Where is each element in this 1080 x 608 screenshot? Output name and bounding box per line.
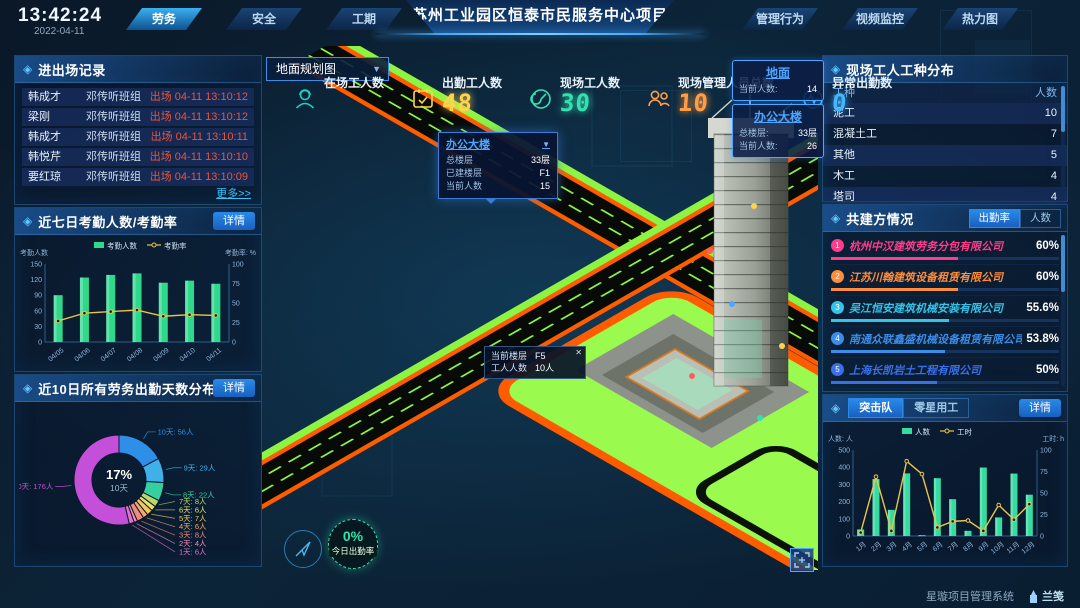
progress-track bbox=[831, 288, 1059, 291]
site-map: 地面规划图 ▼ 在场工人数 出勤工人数 48 bbox=[262, 46, 818, 570]
building-tooltip: 办公大楼 ▼ 总楼层33层 已建楼层F1 当前人数15 bbox=[438, 132, 558, 199]
partner-row: 5 上海长凯岩土工程有限公司 50% bbox=[831, 358, 1059, 389]
nav-tabs-right: 管理行为 视频监控 热力图 bbox=[742, 8, 1018, 30]
stat-attendance-workers: 出勤工人数 48 bbox=[410, 74, 502, 115]
detail-button[interactable]: 详情 bbox=[213, 212, 255, 230]
attendance-label: 今日出勤率 bbox=[329, 545, 377, 557]
progress-fill bbox=[831, 319, 949, 322]
svg-text:1月: 1月 bbox=[854, 540, 868, 553]
chevron-down-icon: ▼ bbox=[542, 140, 550, 149]
detail-button[interactable]: 详情 bbox=[213, 379, 255, 397]
svg-text:90: 90 bbox=[34, 293, 42, 300]
trade-count: 5 bbox=[1027, 145, 1057, 166]
svg-text:25: 25 bbox=[1040, 512, 1048, 519]
rank-badge: 1 bbox=[831, 239, 844, 252]
progress-fill bbox=[831, 350, 945, 353]
company-value: 55.6% bbox=[1026, 302, 1059, 314]
exit-time: 出场 04-11 13:10:10 bbox=[150, 148, 248, 166]
card-row: 当前人数:26 bbox=[739, 140, 817, 153]
stat-value: 48 bbox=[441, 91, 503, 115]
tab-attendance-rate[interactable]: 出勤率 bbox=[969, 209, 1021, 228]
svg-text:60: 60 bbox=[34, 308, 42, 315]
crew-name: 邓传听班组 bbox=[86, 148, 150, 166]
partner-list: 1 杭州中汉建筑劳务分包有限公司 60% 2 江苏川翰建筑设备租赁有限公司 60… bbox=[823, 232, 1067, 392]
card-row: 总楼层:33层 bbox=[739, 127, 817, 140]
trade-row: 木工 4 bbox=[823, 166, 1067, 187]
svg-text:2月: 2月 bbox=[870, 540, 884, 553]
progress-track bbox=[831, 381, 1059, 384]
svg-text:30: 30 bbox=[34, 324, 42, 331]
rank-badge: 5 bbox=[831, 363, 844, 376]
nav-tabs-left: 劳务 安全 工期 bbox=[126, 8, 402, 30]
svg-text:4月: 4月 bbox=[900, 540, 914, 553]
svg-text:50: 50 bbox=[232, 301, 240, 308]
panel-attendance-chart: ◈ 近七日考勤人数/考勤率 详情 03060901201500255075100… bbox=[14, 207, 262, 372]
svg-text:50: 50 bbox=[1040, 491, 1048, 498]
brand-logo: 兰笺 bbox=[1028, 588, 1064, 604]
fullscreen-button[interactable] bbox=[790, 548, 814, 572]
scrollbar bbox=[1061, 86, 1065, 196]
svg-text:0: 0 bbox=[846, 534, 850, 541]
exit-time: 出场 04-11 13:10:09 bbox=[150, 168, 248, 186]
company-name: 杭州中汉建筑劳务分包有限公司 bbox=[849, 238, 1032, 254]
company-value: 60% bbox=[1036, 271, 1059, 283]
panel-squad-chart: ◈ 突击队 零星用工 详情 01002003004005000255075100… bbox=[822, 394, 1068, 567]
tab-headcount[interactable]: 人数 bbox=[1020, 209, 1061, 228]
panel-header: ◈ 进出场记录 bbox=[15, 56, 261, 83]
svg-text:04/05: 04/05 bbox=[47, 347, 65, 363]
page-title: 苏州工业园区恒泰市民服务中心项目 bbox=[406, 0, 674, 33]
partner-row: 3 吴江恒安建筑机械安装有限公司 55.6% bbox=[831, 296, 1059, 327]
diamond-icon: ◈ bbox=[831, 401, 840, 415]
card-title: 办公大楼 bbox=[739, 108, 817, 125]
company-value: 60% bbox=[1036, 240, 1059, 252]
svg-text:10天: 56人: 10天: 56人 bbox=[158, 427, 194, 436]
panel-title: 共建方情况 bbox=[846, 209, 914, 228]
panel-header: ◈ 近10日所有劳务出勤天数分布 详情 bbox=[15, 375, 261, 402]
crew-name: 邓传听班组 bbox=[86, 128, 151, 146]
svg-text:9月: 9月 bbox=[977, 540, 991, 553]
svg-text:17%: 17% bbox=[106, 467, 132, 482]
worker-marker-icon[interactable] bbox=[779, 343, 785, 349]
panel-header: ◈ 突击队 零星用工 详情 bbox=[823, 395, 1067, 422]
trade-count: 4 bbox=[1027, 166, 1057, 187]
svg-text:04/06: 04/06 bbox=[74, 347, 92, 363]
worker-marker-icon[interactable] bbox=[757, 415, 763, 421]
svg-text:考勤人数: 考勤人数 bbox=[20, 248, 48, 257]
svg-text:8月: 8月 bbox=[962, 540, 976, 553]
svg-text:150: 150 bbox=[30, 262, 42, 269]
trade-count: 10 bbox=[1027, 103, 1057, 124]
svg-text:100: 100 bbox=[232, 262, 244, 269]
card-office-building[interactable]: 办公大楼 总楼层:33层 当前人数:26 bbox=[732, 104, 824, 158]
squad-chart: 010020030040050002550751001月2月3月4月5月6月7月… bbox=[827, 424, 1065, 564]
company-name: 吴江恒安建筑机械安装有限公司 bbox=[849, 300, 1022, 316]
top-bar: 13:42:24 2022-04-11 劳务 安全 工期 苏州工业园区恒泰市民服… bbox=[0, 0, 1080, 46]
tooltip-row: 当前人数15 bbox=[446, 180, 550, 193]
progress-track bbox=[831, 257, 1059, 260]
crew-name: 邓传听班组 bbox=[86, 168, 150, 186]
squad-tabs: 突击队 零星用工 bbox=[848, 398, 969, 418]
svg-text:100: 100 bbox=[1040, 448, 1052, 455]
worker-name: 韩成才 bbox=[28, 128, 86, 146]
company-value: 50% bbox=[1036, 364, 1059, 376]
navigation-arrow-icon bbox=[293, 539, 313, 559]
exit-time: 出场 04-11 13:10:12 bbox=[150, 108, 248, 126]
exit-time: 出场 04-11 13:10:11 bbox=[151, 128, 248, 146]
svg-text:200: 200 bbox=[838, 499, 850, 506]
system-name: 星璇项目管理系统 bbox=[926, 588, 1014, 604]
svg-text:25: 25 bbox=[232, 320, 240, 327]
svg-text:1天: 6人: 1天: 6人 bbox=[179, 547, 207, 556]
svg-text:考勤人数: 考勤人数 bbox=[107, 241, 137, 251]
svg-text:120: 120 bbox=[30, 277, 42, 284]
record-row: 韩成才 邓传听班组 出场 04-11 13:10:11 bbox=[22, 128, 254, 146]
tab-labor[interactable]: 劳务 bbox=[126, 8, 202, 30]
card-title: 地面 bbox=[739, 64, 817, 81]
svg-text:300: 300 bbox=[838, 482, 850, 489]
panel-title: 进出场记录 bbox=[38, 60, 106, 79]
tab-assault-team[interactable]: 突击队 bbox=[848, 398, 903, 418]
svg-text:75: 75 bbox=[232, 281, 240, 288]
svg-text:11月: 11月 bbox=[1005, 540, 1021, 555]
svg-text:12月: 12月 bbox=[1020, 540, 1037, 555]
svg-text:75: 75 bbox=[1040, 469, 1048, 476]
panel-header: ◈ 共建方情况 出勤率 人数 bbox=[823, 205, 1067, 232]
diamond-icon: ◈ bbox=[831, 211, 840, 225]
record-row: 韩悦芹 邓传听班组 出场 04-11 13:10:10 bbox=[22, 148, 254, 166]
worker-name: 韩成才 bbox=[28, 88, 86, 106]
svg-text:10月: 10月 bbox=[989, 540, 1006, 555]
svg-text:9天: 29人: 9天: 29人 bbox=[184, 463, 216, 472]
record-row: 韩成才 邓传听班组 出场 04-11 13:10:12 bbox=[22, 88, 254, 106]
rank-badge: 2 bbox=[831, 270, 844, 283]
card-row: 当前人数:14 bbox=[739, 83, 817, 96]
stat-site-workers: 现场工人数 30 bbox=[528, 74, 620, 115]
svg-text:考勤率: %: 考勤率: % bbox=[225, 248, 256, 257]
card-ground[interactable]: 地面 当前人数:14 bbox=[732, 60, 824, 101]
diamond-icon: ◈ bbox=[23, 214, 32, 228]
attendance-chart: 0306090120150025507510004/0504/0604/0704… bbox=[19, 238, 257, 368]
gauge-icon bbox=[528, 86, 554, 112]
crew-name: 邓传听班组 bbox=[86, 108, 150, 126]
svg-text:04/09: 04/09 bbox=[152, 347, 170, 363]
tab-safety[interactable]: 安全 bbox=[226, 8, 302, 30]
scrollbar bbox=[1061, 235, 1065, 386]
worker-marker-icon[interactable] bbox=[689, 373, 695, 379]
worker-marker-icon[interactable] bbox=[729, 301, 735, 307]
partner-row: 4 南通众联鑫盛机械设备租赁有限公司 53.8% bbox=[831, 327, 1059, 358]
worker-name: 韩悦芹 bbox=[28, 148, 86, 166]
building-tooltip-selector[interactable]: 办公大楼 ▼ bbox=[446, 136, 550, 152]
people-icon bbox=[646, 86, 672, 112]
trade-name: 其他 bbox=[833, 145, 1027, 166]
rank-badge: 4 bbox=[831, 332, 844, 345]
partner-tabs: 出勤率 人数 bbox=[969, 209, 1062, 228]
company-name: 江苏川翰建筑设备租赁有限公司 bbox=[849, 269, 1032, 285]
svg-text:3月: 3月 bbox=[885, 540, 899, 553]
svg-text:04/10: 04/10 bbox=[179, 347, 197, 363]
svg-text:0: 0 bbox=[38, 340, 42, 347]
svg-text:04/08: 04/08 bbox=[126, 347, 144, 363]
stat-value: 30 bbox=[559, 91, 621, 115]
tab-schedule[interactable]: 工期 bbox=[326, 8, 402, 30]
panel-title: 近10日所有劳务出勤天数分布 bbox=[38, 379, 215, 398]
partner-row: 6 江苏浩治建筑安装工程有限公司 35.4% bbox=[831, 389, 1059, 392]
scrollbar-thumb[interactable] bbox=[1061, 86, 1065, 132]
stat-label: 在场工人数 bbox=[324, 74, 384, 91]
record-row: 梁刚 邓传听班组 出场 04-11 13:10:12 bbox=[22, 108, 254, 126]
panel-title: 近七日考勤人数/考勤率 bbox=[38, 212, 177, 231]
clock-date: 2022-04-11 bbox=[34, 26, 84, 37]
tab-heatmap[interactable]: 热力图 bbox=[942, 8, 1018, 30]
trade-table: 泥工 10 混凝土工 7 其他 5 木工 4 塔司 4 bbox=[823, 103, 1067, 208]
svg-text:04/07: 04/07 bbox=[100, 347, 118, 363]
stats-row: 在场工人数 出勤工人数 48 现场工人数 30 bbox=[292, 74, 918, 115]
svg-text:04/11: 04/11 bbox=[205, 347, 223, 363]
svg-text:5月: 5月 bbox=[916, 540, 930, 553]
tab-casual-labor[interactable]: 零星用工 bbox=[903, 398, 969, 418]
company-value: 53.8% bbox=[1026, 333, 1059, 345]
attendance-percent: 0% bbox=[329, 528, 377, 544]
tab-management-behavior[interactable]: 管理行为 bbox=[742, 8, 818, 30]
diamond-icon: ◈ bbox=[23, 62, 32, 76]
worker-marker-icon[interactable] bbox=[707, 248, 713, 254]
svg-text:500: 500 bbox=[838, 448, 850, 455]
column-count: 人数 bbox=[1027, 83, 1057, 103]
building-name: 办公大楼 bbox=[446, 136, 490, 152]
svg-text:100: 100 bbox=[838, 516, 850, 523]
svg-text:0: 0 bbox=[232, 340, 236, 347]
rank-badge: 3 bbox=[831, 301, 844, 314]
trade-count: 7 bbox=[1027, 124, 1057, 145]
partner-row: 1 杭州中汉建筑劳务分包有限公司 60% bbox=[831, 234, 1059, 265]
tooltip-row: 当前楼层F5 bbox=[491, 350, 579, 362]
trade-row: 混凝土工 7 bbox=[823, 124, 1067, 145]
svg-text:400: 400 bbox=[838, 465, 850, 472]
calendar-check-icon bbox=[410, 86, 436, 112]
distribution-donut-chart: 10天: 56人9天: 29人8天: 22人7天: 8人6天: 6人5天: 7人… bbox=[19, 404, 257, 564]
worker-name: 梁刚 bbox=[28, 108, 86, 126]
footer: 星璇项目管理系统 兰笺 bbox=[926, 588, 1064, 604]
progress-fill bbox=[831, 381, 937, 384]
scrollbar-thumb[interactable] bbox=[1061, 235, 1065, 292]
panel-header: ◈ 近七日考勤人数/考勤率 详情 bbox=[15, 208, 261, 235]
brand-tower-icon bbox=[1028, 590, 1039, 603]
svg-text:10天: 10天 bbox=[110, 483, 128, 493]
svg-text:考勤率: 考勤率 bbox=[164, 241, 187, 251]
title-underline-decoration bbox=[375, 33, 705, 35]
svg-text:6月: 6月 bbox=[931, 540, 945, 553]
svg-text:人数: 人数 bbox=[915, 427, 930, 437]
stat-value: 0 bbox=[831, 91, 893, 115]
tooltip-row: 总楼层33层 bbox=[446, 154, 550, 167]
brand-name: 兰笺 bbox=[1042, 588, 1064, 604]
company-name: 南通众联鑫盛机械设备租赁有限公司 bbox=[849, 331, 1022, 347]
worker-marker-icon[interactable] bbox=[751, 203, 757, 209]
floor-tooltip: ✕ 当前楼层F5 工人人数10人 bbox=[484, 346, 586, 379]
close-icon[interactable]: ✕ bbox=[575, 348, 582, 357]
progress-track bbox=[831, 350, 1059, 353]
dashboard: 13:42:24 2022-04-11 劳务 安全 工期 苏州工业园区恒泰市民服… bbox=[0, 0, 1080, 608]
progress-fill bbox=[831, 257, 958, 260]
tooltip-row: 已建楼层F1 bbox=[446, 167, 550, 180]
svg-text:工时: h: 工时: h bbox=[1042, 434, 1064, 443]
trade-name: 木工 bbox=[833, 166, 1027, 187]
trade-row: 其他 5 bbox=[823, 145, 1067, 166]
progress-fill bbox=[831, 288, 958, 291]
panel-partners: ◈ 共建方情况 出勤率 人数 1 杭州中汉建筑劳务分包有限公司 60% 2 江苏… bbox=[822, 204, 1068, 392]
detail-button[interactable]: 详情 bbox=[1019, 399, 1061, 417]
tab-video-monitor[interactable]: 视频监控 bbox=[842, 8, 918, 30]
panel-attendance-days-distribution: ◈ 近10日所有劳务出勤天数分布 详情 10天: 56人9天: 29人8天: 2… bbox=[14, 374, 262, 567]
compass-control[interactable] bbox=[284, 530, 322, 568]
today-attendance-badge: 0% 今日出勤率 bbox=[328, 519, 378, 569]
stat-onsite-workers: 在场工人数 bbox=[292, 74, 384, 112]
svg-text:7月: 7月 bbox=[946, 540, 960, 553]
diamond-icon: ◈ bbox=[23, 381, 32, 395]
svg-text:人数: 人: 人数: 人 bbox=[828, 434, 853, 443]
worker-icon bbox=[292, 86, 318, 112]
clock-time: 13:42:24 bbox=[18, 5, 102, 27]
record-row: 要红琼 邓传听班组 出场 04-11 13:10:09 bbox=[22, 168, 254, 186]
partner-row: 2 江苏川翰建筑设备租赁有限公司 60% bbox=[831, 265, 1059, 296]
crew-name: 邓传听班组 bbox=[86, 88, 150, 106]
fullscreen-icon bbox=[791, 549, 813, 571]
svg-text:0: 0 bbox=[1040, 534, 1044, 541]
record-list: 韩成才 邓传听班组 出场 04-11 13:10:12 梁刚 邓传听班组 出场 … bbox=[15, 83, 261, 186]
more-link[interactable]: 更多>> bbox=[216, 185, 251, 201]
svg-text:工时: 工时 bbox=[957, 427, 972, 437]
worker-name: 要红琼 bbox=[28, 168, 86, 186]
exit-time: 出场 04-11 13:10:12 bbox=[150, 88, 248, 106]
company-name: 上海长凯岩土工程有限公司 bbox=[849, 362, 1032, 378]
svg-text:0天: 176人: 0天: 176人 bbox=[19, 482, 54, 491]
progress-track bbox=[831, 319, 1059, 322]
trade-name: 混凝土工 bbox=[833, 124, 1027, 145]
panel-entry-exit-records: ◈ 进出场记录 韩成才 邓传听班组 出场 04-11 13:10:12 梁刚 邓… bbox=[14, 55, 262, 205]
tooltip-row: 工人人数10人 bbox=[491, 362, 579, 374]
